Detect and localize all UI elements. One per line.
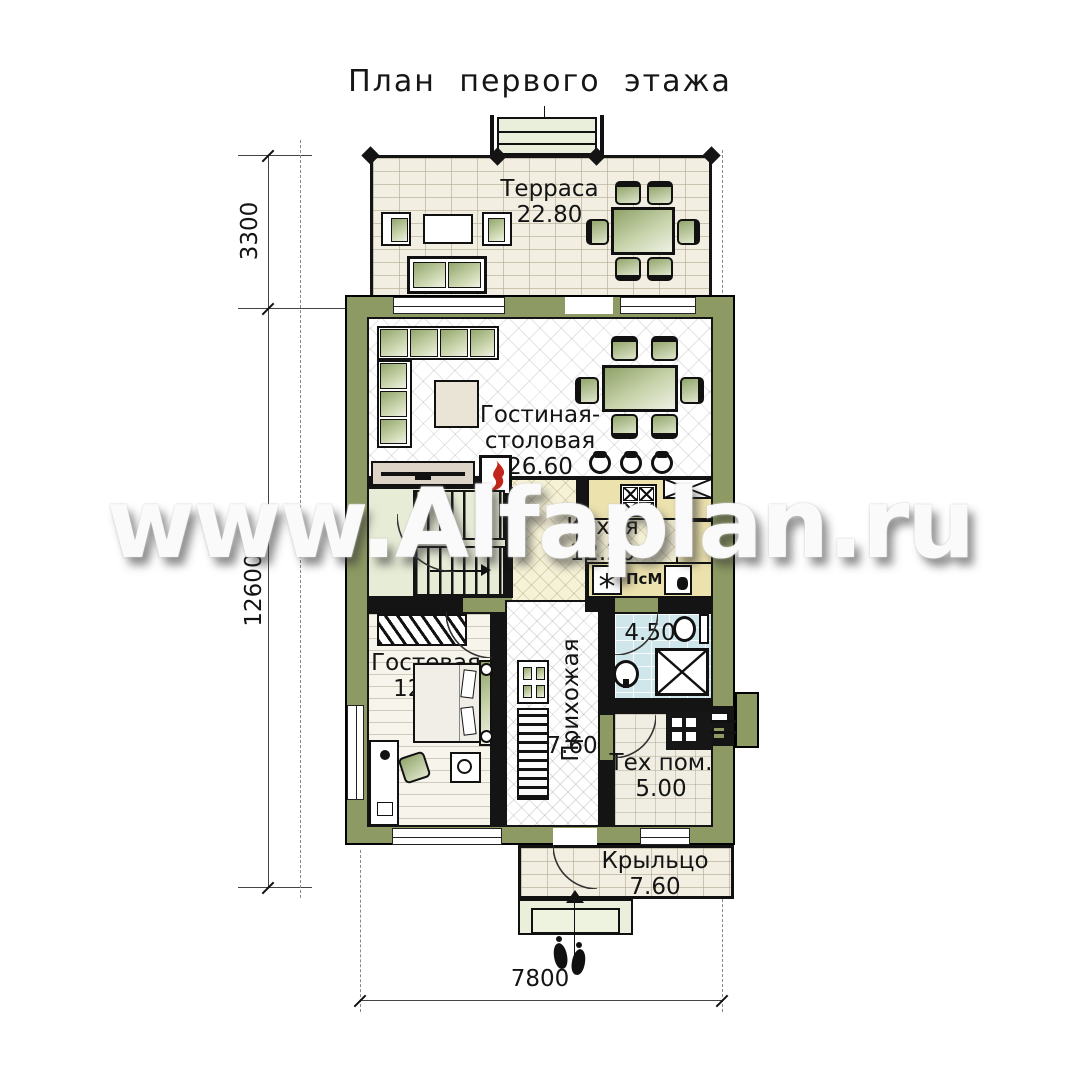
window	[620, 297, 696, 314]
stool-back	[624, 451, 638, 458]
cabinet-cell	[536, 667, 545, 680]
wall-segment	[600, 612, 613, 715]
cushion	[380, 391, 407, 417]
page-title: План первого этажа	[0, 64, 1080, 99]
laundry-basket	[450, 752, 481, 783]
wall-segment	[492, 612, 505, 827]
cushion	[380, 363, 407, 389]
window	[393, 297, 505, 314]
armchair	[381, 212, 411, 246]
chair	[586, 219, 609, 245]
wall-segment	[658, 598, 713, 612]
porch-label: Крыльцо 7.60	[595, 848, 715, 900]
watermark: www.Alfaplan.ru	[0, 468, 1080, 580]
step-line	[499, 143, 595, 145]
cushion	[380, 419, 407, 444]
axis-line-bottom-left	[360, 850, 361, 1012]
porch-area: 7.60	[629, 874, 680, 900]
porch-steps	[518, 899, 633, 935]
armchair	[482, 212, 512, 246]
cushion	[413, 262, 446, 288]
door-arc	[613, 715, 656, 758]
coffee-table	[423, 214, 473, 244]
toilet-icon	[673, 616, 696, 642]
wall-segment	[613, 700, 713, 712]
porch-name: Крыльцо	[601, 848, 708, 874]
chair	[651, 336, 678, 361]
cushion	[470, 329, 495, 357]
door-opening	[565, 297, 613, 314]
porch-arrow-icon	[566, 890, 584, 903]
porch-step-inner	[531, 908, 620, 934]
bedside-lamp	[480, 663, 493, 676]
cushion	[448, 262, 481, 288]
stool-back	[593, 451, 607, 458]
corner-sofa-horizontal	[377, 326, 499, 360]
cushion	[410, 329, 438, 357]
boiler-cell	[672, 718, 682, 727]
chair	[575, 377, 599, 404]
terrace-dining-table	[611, 207, 675, 255]
chair	[615, 181, 641, 205]
cabinet-cell	[523, 685, 532, 698]
terrace-name: Терраса	[500, 176, 598, 202]
floor-plan-canvas: План первого этажа 3300 12600 7800 Терра…	[0, 0, 1080, 1080]
dimension-line-bottom	[360, 1000, 722, 1001]
door-arc	[446, 612, 492, 658]
hallway-area: 7.60	[542, 733, 602, 759]
pillow	[460, 669, 476, 698]
window	[347, 705, 364, 800]
chair	[680, 377, 704, 404]
boiler-cell	[686, 732, 696, 741]
door-opening	[553, 828, 597, 845]
shower-icon	[655, 648, 709, 696]
chair	[677, 219, 700, 245]
cushion	[440, 329, 468, 357]
cabinet-cell	[536, 685, 545, 698]
wall-segment	[367, 598, 463, 612]
corner-sofa-vertical	[377, 360, 412, 448]
window	[640, 828, 690, 845]
window	[392, 828, 502, 845]
bed	[413, 663, 481, 743]
desk-item	[377, 802, 393, 816]
door-arc	[615, 612, 658, 655]
bedside-lamp	[480, 730, 493, 743]
chair	[647, 181, 673, 205]
desk	[369, 740, 399, 826]
cushion	[391, 218, 408, 242]
boiler-pipe	[710, 731, 736, 734]
footprint-toe	[576, 942, 582, 948]
door-arc	[553, 845, 597, 889]
footprint-toe	[556, 936, 562, 942]
cushion	[488, 218, 505, 242]
dimension-terrace-depth: 3300	[237, 185, 263, 277]
step-line	[499, 131, 595, 133]
basin-tap	[623, 679, 629, 688]
boiler-cell	[672, 732, 682, 741]
dimension-house-width: 7800	[460, 966, 620, 992]
living-name-1: Гостиная-	[480, 402, 600, 428]
terrace-area: 22.80	[517, 202, 583, 228]
shoe-cabinet	[517, 660, 549, 704]
cabinet-cell	[523, 667, 532, 680]
boiler-pipe	[710, 720, 736, 723]
chair	[615, 257, 641, 281]
washbasin-icon	[613, 660, 639, 688]
chair	[647, 257, 673, 281]
desk-lamp	[380, 750, 390, 760]
boiler-cell	[686, 718, 696, 727]
cushion	[380, 329, 408, 357]
terrace-sofa	[407, 256, 487, 294]
bed-line	[459, 665, 460, 741]
tech-area: 5.00	[635, 776, 686, 802]
stool-back	[655, 451, 669, 458]
pillow	[460, 706, 476, 735]
chair	[651, 414, 678, 439]
terrace-steps	[497, 117, 597, 155]
living-name-2: столовая	[485, 428, 595, 454]
chimney-bump	[735, 692, 759, 748]
toilet-tank	[699, 614, 709, 644]
basket-circle	[457, 759, 472, 774]
boiler-icon	[666, 712, 712, 750]
chair	[611, 336, 638, 361]
